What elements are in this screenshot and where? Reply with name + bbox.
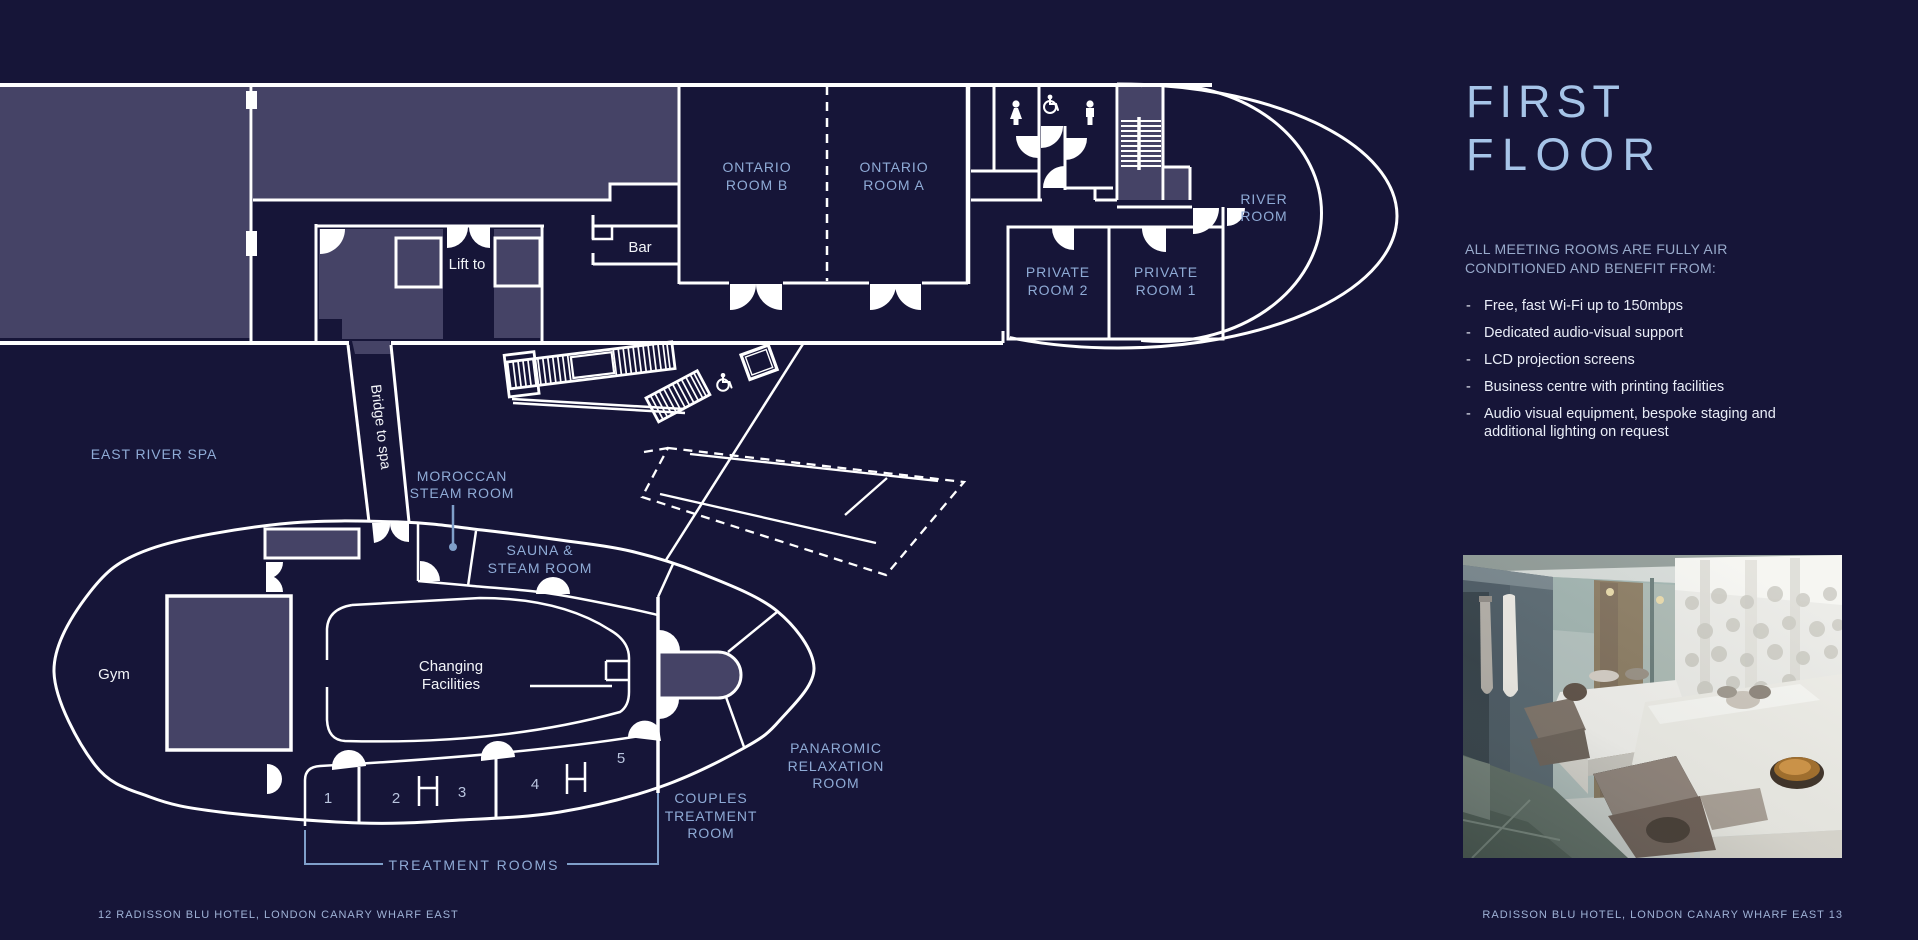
svg-text:1: 1	[324, 790, 332, 807]
svg-text:Changing: Changing	[419, 658, 483, 675]
svg-text:5: 5	[617, 750, 625, 767]
svg-text:TREATMENT: TREATMENT	[665, 808, 758, 824]
svg-text:MOROCCAN: MOROCCAN	[417, 468, 507, 484]
svg-text:PANAROMIC: PANAROMIC	[790, 740, 882, 756]
svg-text:Facilities: Facilities	[422, 676, 480, 693]
svg-text:-: -	[1466, 298, 1471, 314]
svg-text:Dedicated audio-visual support: Dedicated audio-visual support	[1484, 325, 1683, 341]
svg-text:FIRST: FIRST	[1466, 76, 1626, 127]
svg-text:SAUNA &: SAUNA &	[507, 542, 574, 558]
svg-text:ROOM 2: ROOM 2	[1028, 282, 1089, 298]
svg-text:Bar: Bar	[628, 239, 651, 256]
svg-text:Gym: Gym	[98, 666, 130, 683]
svg-text:Business centre with printing: Business centre with printing facilities	[1484, 379, 1724, 395]
svg-text:ONTARIO: ONTARIO	[859, 159, 928, 175]
svg-text:EAST RIVER SPA: EAST RIVER SPA	[91, 446, 217, 462]
svg-text:-: -	[1466, 379, 1471, 395]
svg-text:2: 2	[392, 790, 400, 807]
svg-text:PRIVATE: PRIVATE	[1134, 264, 1198, 280]
svg-text:RELAXATION: RELAXATION	[788, 758, 885, 774]
svg-text:Audio visual equipment, bespok: Audio visual equipment, bespoke staging …	[1484, 406, 1776, 422]
svg-text:LCD projection screens: LCD projection screens	[1484, 352, 1635, 368]
svg-text:ROOM A: ROOM A	[863, 177, 924, 193]
svg-text:3: 3	[458, 784, 466, 801]
svg-text:PRIVATE: PRIVATE	[1026, 264, 1090, 280]
svg-text:4: 4	[531, 776, 539, 793]
svg-text:ROOM 1: ROOM 1	[1136, 282, 1197, 298]
svg-text:STEAM ROOM: STEAM ROOM	[410, 485, 515, 501]
svg-text:Lift to: Lift to	[449, 256, 486, 273]
svg-text:ROOM: ROOM	[1240, 208, 1287, 224]
svg-text:STEAM ROOM: STEAM ROOM	[488, 560, 593, 576]
svg-text:ROOM B: ROOM B	[726, 177, 788, 193]
svg-text:-: -	[1466, 352, 1471, 368]
svg-text:-: -	[1466, 325, 1471, 341]
svg-text:ROOM: ROOM	[687, 825, 734, 841]
svg-text:Free, fast Wi-Fi up to 150mbps: Free, fast Wi-Fi up to 150mbps	[1484, 298, 1683, 314]
svg-text:RIVER: RIVER	[1240, 191, 1287, 207]
svg-text:ALL MEETING ROOMS ARE FULLY AI: ALL MEETING ROOMS ARE FULLY AIR	[1465, 241, 1728, 257]
svg-text:TREATMENT ROOMS: TREATMENT ROOMS	[388, 857, 559, 873]
svg-text:CONDITIONED AND BENEFIT FROM:: CONDITIONED AND BENEFIT FROM:	[1465, 260, 1716, 276]
svg-text:additional lighting on request: additional lighting on request	[1484, 424, 1669, 440]
svg-text:RADISSON BLU HOTEL, LONDON CAN: RADISSON BLU HOTEL, LONDON CANARY WHARF …	[1482, 909, 1843, 921]
svg-text:ONTARIO: ONTARIO	[722, 159, 791, 175]
svg-text:ROOM: ROOM	[812, 775, 859, 791]
svg-text:COUPLES: COUPLES	[674, 790, 747, 806]
svg-text:-: -	[1466, 406, 1471, 422]
svg-text:12 RADISSON BLU HOTEL, LONDON: 12 RADISSON BLU HOTEL, LONDON CANARY WHA…	[98, 909, 459, 921]
svg-text:FLOOR: FLOOR	[1466, 129, 1664, 180]
